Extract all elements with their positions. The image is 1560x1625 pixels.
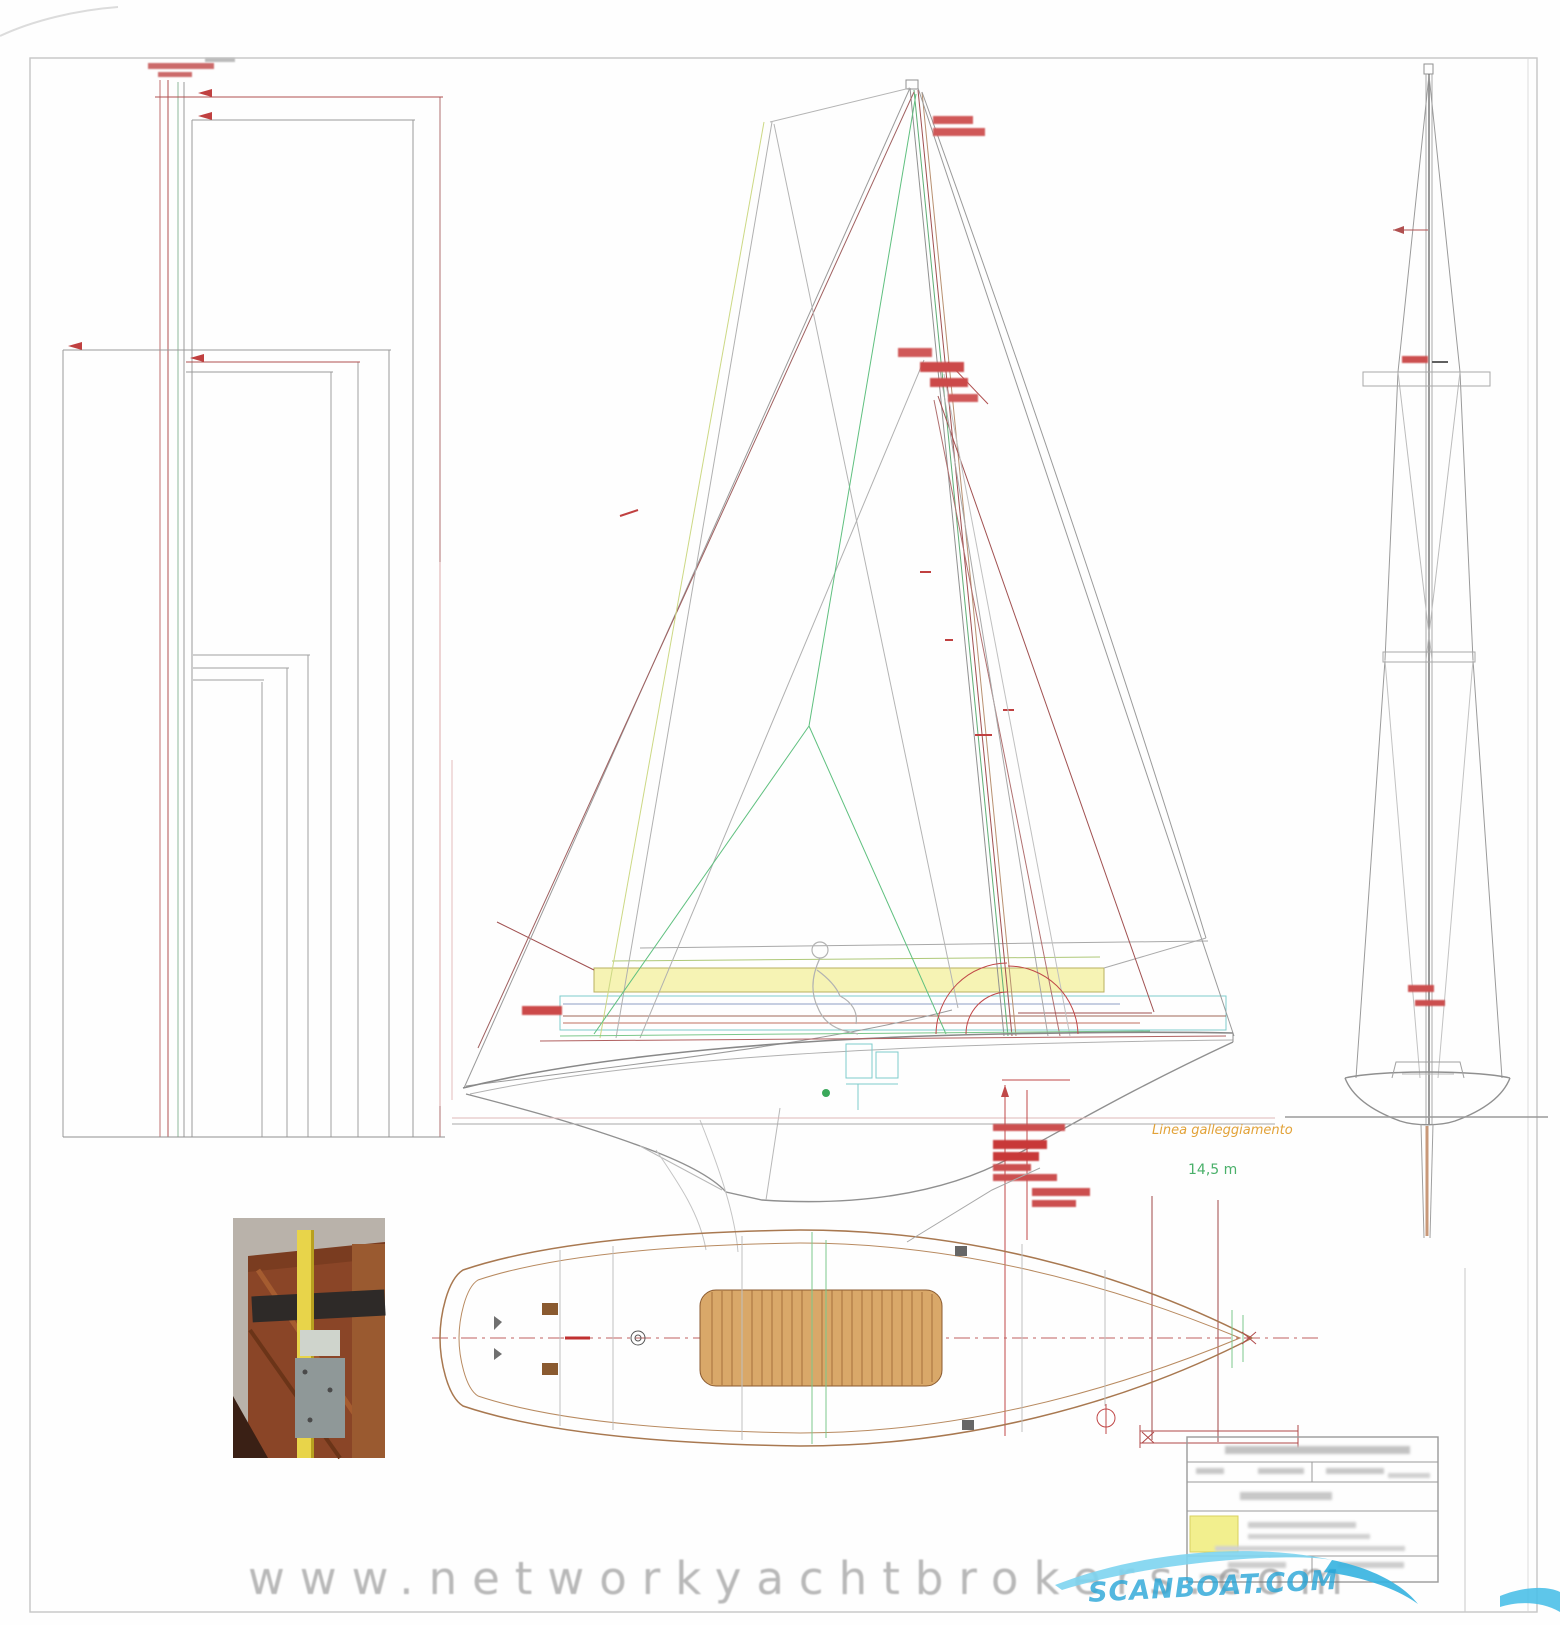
scanboat-logo: SCANBOAT.COM — [0, 0, 1560, 1625]
blueprint-sheet: Linea galleggiamento 14,5 m www.networky… — [0, 0, 1560, 1625]
